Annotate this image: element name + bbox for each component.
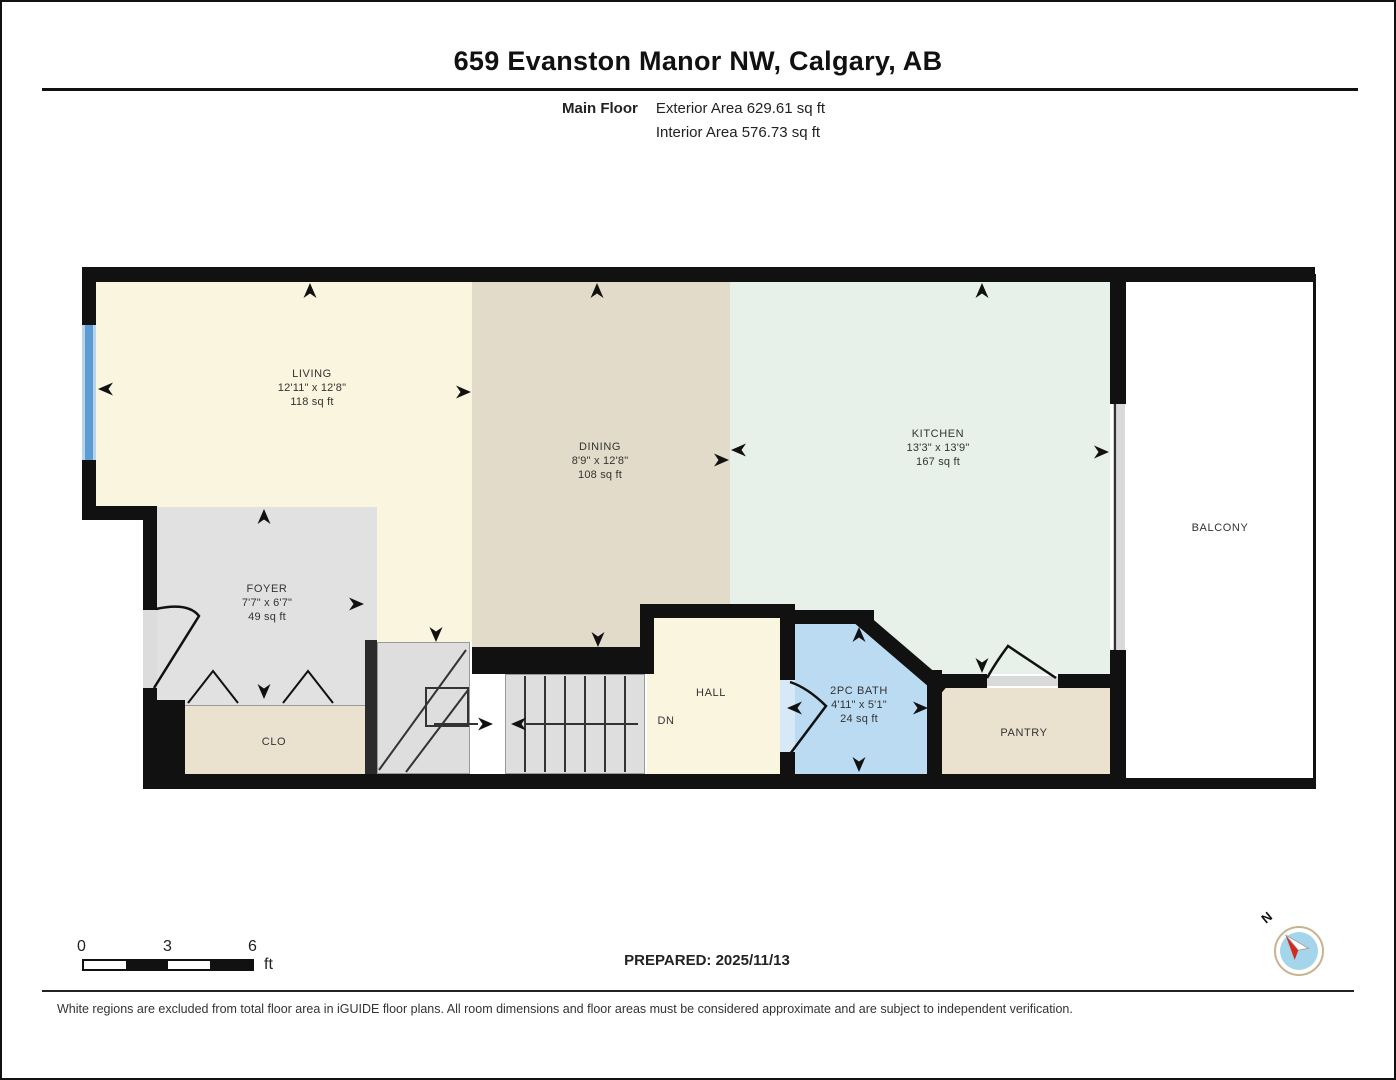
closet-label: CLO: [224, 735, 324, 749]
prepared-date: PREPARED: 2025/11/13: [557, 952, 857, 969]
kitchen-label: KITCHEN13'3" x 13'9"167 sq ft: [838, 427, 1038, 469]
dimension-arrows: [98, 283, 1109, 772]
pantry-label: PANTRY: [964, 726, 1084, 740]
disclaimer-text: White regions are excluded from total fl…: [57, 1002, 1077, 1016]
bath-label: 2PC BATH4'11" x 5'1"24 sq ft: [789, 684, 929, 726]
plan-annotations: [2, 2, 1396, 1080]
footer-divider: [42, 990, 1354, 992]
compass-icon: N: [1260, 910, 1336, 986]
living-label: LIVING12'11" x 12'8"118 sq ft: [212, 367, 412, 409]
closet-door-icon: [188, 671, 238, 703]
closet-door-icon: [283, 671, 333, 703]
stairs-dn-label: DN: [646, 714, 686, 728]
compass-needle: [1260, 910, 1336, 986]
scale-bar: [82, 959, 254, 971]
dining-label: DINING8'9" x 12'8"108 sq ft: [500, 440, 700, 482]
balcony-label: BALCONY: [1160, 521, 1280, 535]
scale-bar-unit: ft: [264, 956, 273, 974]
hall-label: HALL: [661, 686, 761, 700]
foyer-label: FOYER7'7" x 6'7"49 sq ft: [167, 582, 367, 624]
pantry-door-icon: [987, 646, 1056, 678]
floorplan-page: 659 Evanston Manor NW, Calgary, AB Main …: [0, 0, 1396, 1080]
stairs-up-detail: [379, 650, 478, 772]
